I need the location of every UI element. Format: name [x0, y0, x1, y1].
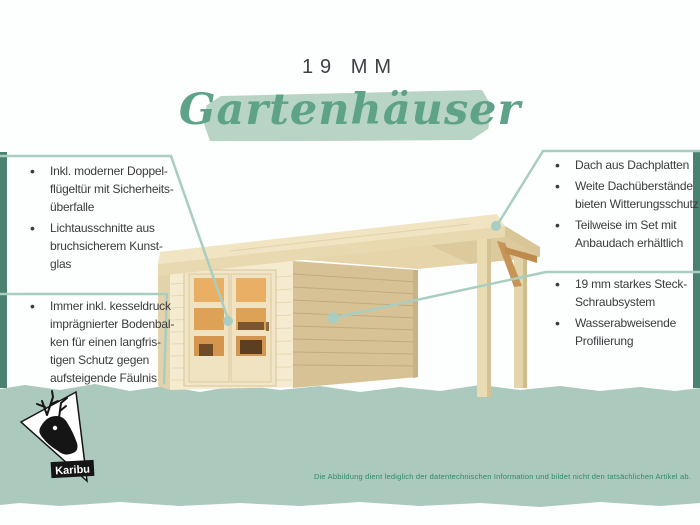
callout-block-left-top: Inkl. moderner Doppel- flügeltür mit Sic… [29, 162, 174, 273]
door-left-leaf [189, 274, 229, 382]
footer-band [0, 384, 700, 507]
feature-item: Lichtausschnitte aus bruchsicherem Kunst… [29, 219, 174, 273]
door-handle [266, 322, 269, 331]
feature-item: Teilweise im Set mit Anbaudach erhältlic… [554, 216, 698, 252]
feature-list: Dach aus Dachplatten Weite Dachüberständ… [554, 156, 698, 252]
feature-item: Wasserabweisende Profilierung [554, 314, 687, 350]
feature-item: Inkl. moderner Doppel- flügeltür mit Sic… [29, 162, 174, 216]
canopy-post-front-shade [487, 239, 491, 397]
disclaimer-text: Die Abbildung dient lediglich der datent… [314, 472, 691, 481]
feature-list: Immer inkl. kesseldruck imprägnierter Bo… [29, 297, 174, 387]
feature-list: Inkl. moderner Doppel- flügeltür mit Sic… [29, 162, 174, 273]
callout-dot-roof [491, 221, 501, 231]
callout-block-left-bottom: Immer inkl. kesseldruck imprägnierter Bo… [29, 297, 174, 387]
page-title-size: 19 MM [0, 56, 700, 79]
callout-block-right-bottom: 19 mm starkes Steck- Schraubsystem Wasse… [554, 275, 687, 350]
feature-item: Weite Dachüberstände bieten Witterungssc… [554, 177, 698, 213]
window-pane [236, 278, 266, 302]
canopy-post-back-shade [523, 252, 527, 388]
callout-block-right-top: Dach aus Dachplatten Weite Dachüberständ… [554, 156, 698, 252]
feature-item: Immer inkl. kesseldruck imprägnierter Bo… [29, 297, 174, 387]
infographic-page: { "header": { "title_top": "19 MM", "tit… [0, 0, 700, 525]
feature-list: 19 mm starkes Steck- Schraubsystem Wasse… [554, 275, 687, 350]
callout-dot-wall [328, 313, 339, 324]
feature-item: Dach aus Dachplatten [554, 156, 698, 174]
feature-item: 19 mm starkes Steck- Schraubsystem [554, 275, 687, 311]
side-wall-corner-shade [413, 270, 418, 378]
window-pane [194, 308, 224, 330]
brand-label: Karibu [55, 464, 90, 478]
callout-dot-door [223, 316, 233, 326]
brand-badge: Karibu [51, 460, 95, 478]
page-title-script: Gartenhäuser [0, 85, 700, 135]
door-right-leaf [231, 274, 271, 382]
shed-side-wall [293, 261, 418, 388]
